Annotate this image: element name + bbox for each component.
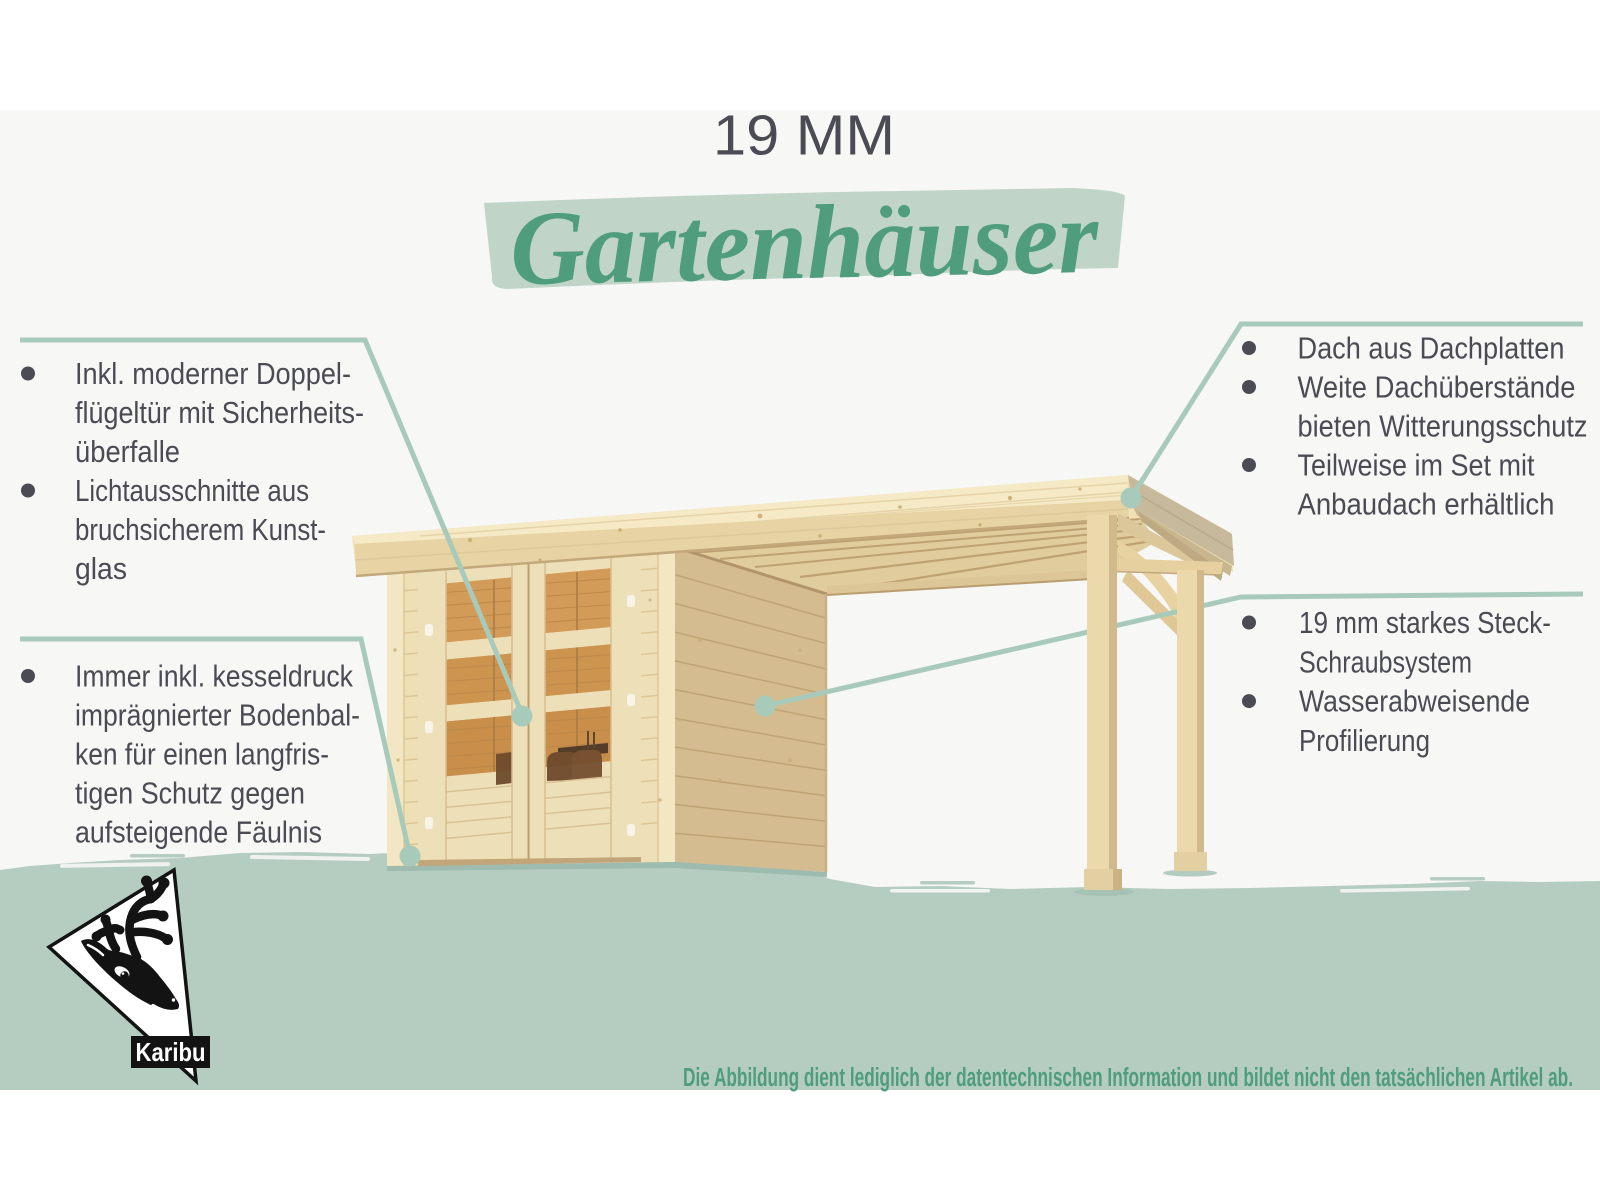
- svg-text:19 MM: 19 MM: [713, 104, 895, 168]
- svg-text:Anbaudach erhältlich: Anbaudach erhältlich: [1298, 487, 1555, 522]
- svg-text:bieten Witterungsschutz: bieten Witterungsschutz: [1298, 409, 1588, 444]
- svg-text:aufsteigende Fäulnis: aufsteigende Fäulnis: [75, 815, 322, 850]
- svg-text:Teilweise im Set mit: Teilweise im Set mit: [1298, 448, 1535, 483]
- svg-text:bruchsicherem Kunst-: bruchsicherem Kunst-: [75, 512, 326, 547]
- svg-text:tigen Schutz gegen: tigen Schutz gegen: [75, 776, 305, 811]
- svg-text:glas: glas: [75, 551, 127, 586]
- svg-text:Lichtausschnitte aus: Lichtausschnitte aus: [75, 473, 309, 508]
- svg-text:19 mm starkes Steck-: 19 mm starkes Steck-: [1299, 605, 1551, 640]
- svg-text:Gartenhäuser: Gartenhäuser: [509, 178, 1101, 307]
- svg-text:Immer inkl. kesseldruck: Immer inkl. kesseldruck: [75, 659, 353, 694]
- svg-text:flügeltür mit Sicherheits-: flügeltür mit Sicherheits-: [75, 395, 364, 430]
- svg-text:Karibu: Karibu: [136, 1037, 206, 1067]
- svg-text:überfalle: überfalle: [75, 434, 180, 469]
- svg-text:Wasserabweisende: Wasserabweisende: [1299, 684, 1530, 719]
- svg-text:imprägnierter Bodenbal-: imprägnierter Bodenbal-: [75, 698, 360, 733]
- svg-text:Schraubsystem: Schraubsystem: [1299, 644, 1472, 679]
- svg-text:ken für einen langfris-: ken für einen langfris-: [75, 737, 329, 772]
- svg-text:Dach aus Dachplatten: Dach aus Dachplatten: [1298, 331, 1565, 366]
- svg-text:Profilierung: Profilierung: [1299, 723, 1430, 758]
- svg-text:Die Abbildung dient lediglich: Die Abbildung dient lediglich der datent…: [683, 1064, 1573, 1092]
- svg-text:Weite Dachüberstände: Weite Dachüberstände: [1298, 370, 1576, 405]
- svg-text:Inkl. moderner Doppel-: Inkl. moderner Doppel-: [75, 356, 351, 391]
